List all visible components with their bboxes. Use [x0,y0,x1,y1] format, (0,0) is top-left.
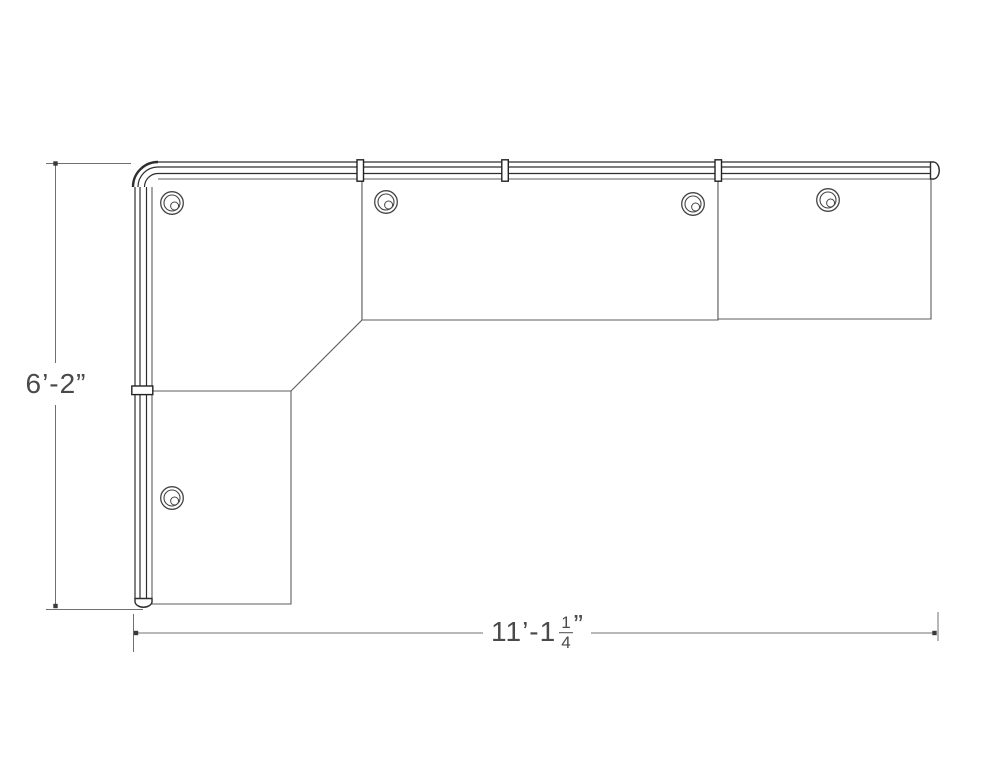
plan-svg [0,0,1000,773]
floor-plan-drawing: 6’-2” 11’-1 1 4 ” [0,0,1000,773]
rail-connector-1 [502,160,509,181]
right-worksurface [718,179,931,319]
width-dimension-label: 11’-1 1 4 ” [483,611,591,653]
fraction-denominator: 4 [561,633,570,653]
middle-worksurface [362,179,718,320]
width-dimension-inch-mark: ” [574,614,583,635]
dim-tick-3 [932,631,936,635]
dim-tick-1 [53,604,57,608]
height-dimension-label: 6’-2” [22,363,89,405]
dim-tick-0 [53,161,57,165]
rail-end-cap-right [931,162,940,179]
rail-connector-3 [132,386,153,395]
rail-end-cap-bottom [135,599,152,608]
rail-connector-0 [357,160,364,181]
rail-connector-2 [715,160,722,181]
width-dimension-whole: 11’-1 [491,616,556,648]
dim-tick-2 [134,631,138,635]
fraction-numerator: 1 [559,613,572,633]
corner-worksurface [152,179,362,391]
width-dimension-fraction: 1 4 [559,613,572,653]
